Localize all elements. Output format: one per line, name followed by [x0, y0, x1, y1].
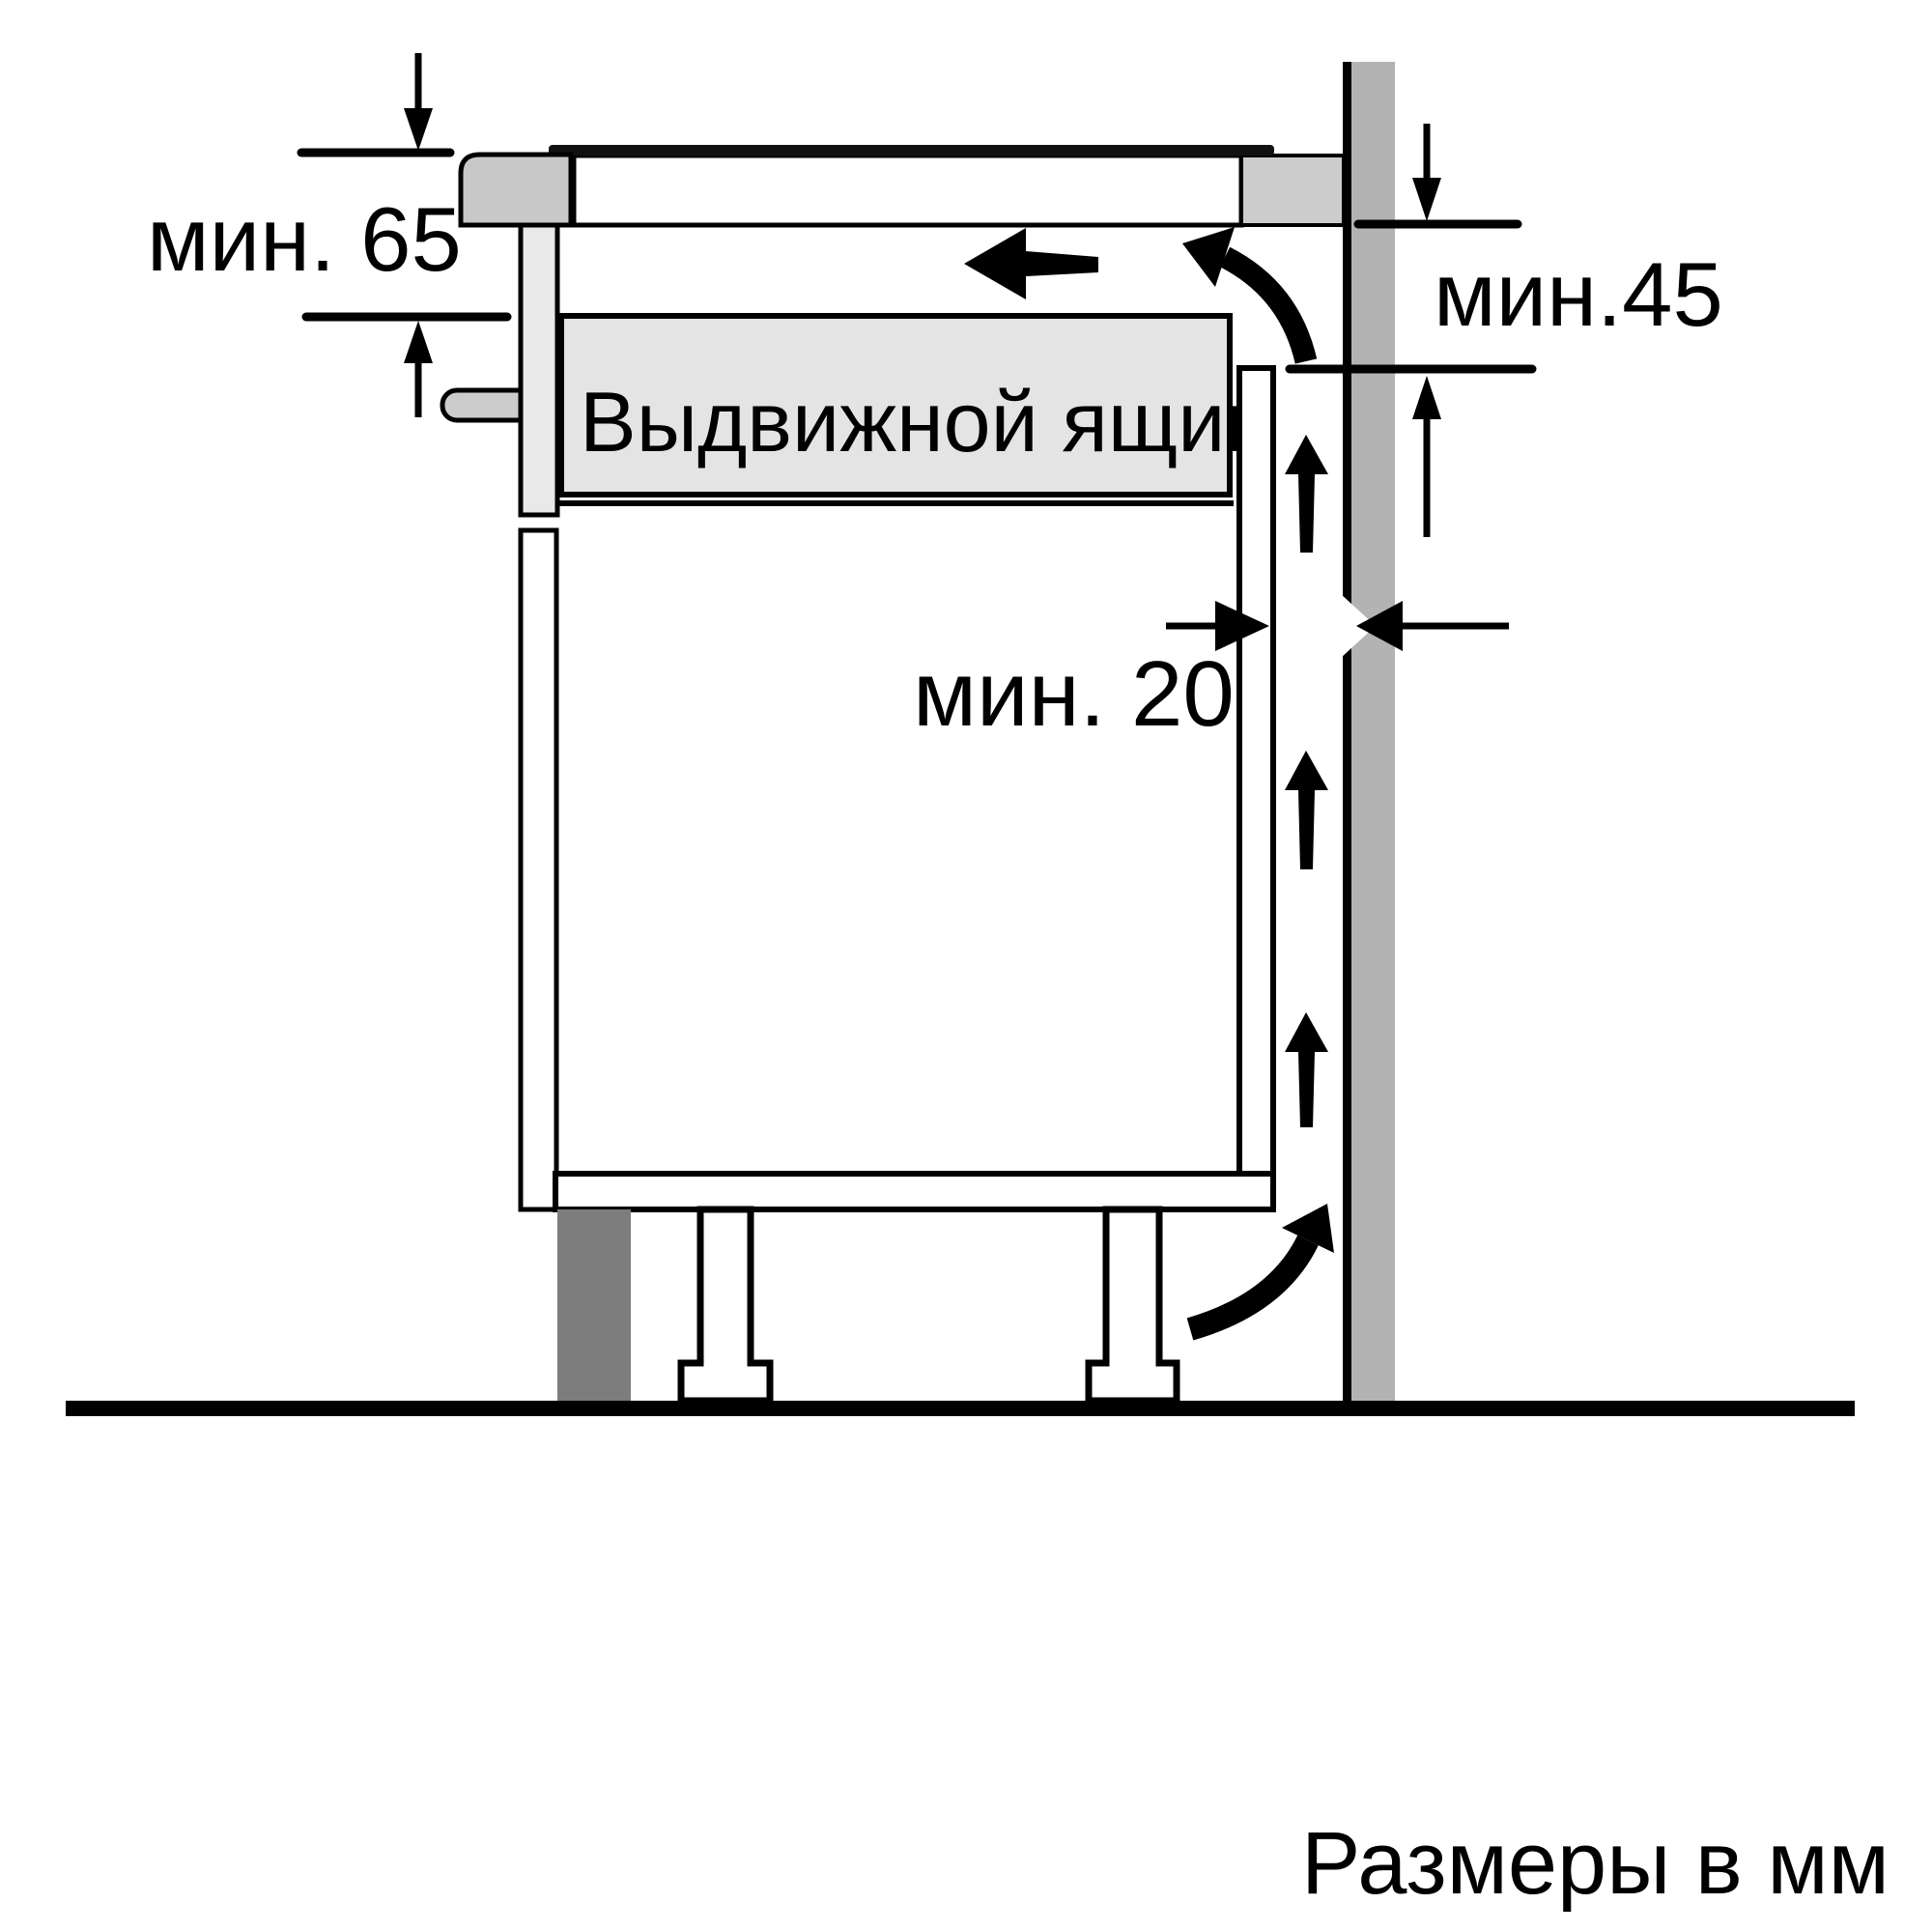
- airflow-up-arrow-3-icon: [1285, 1012, 1328, 1127]
- plinth-dark-block: [557, 1209, 631, 1401]
- installation-diagram: Выдвижной ящик мин. 65 мин.45 мин. 20: [0, 0, 1932, 1932]
- worktop: [574, 156, 1241, 225]
- dimension-min20: мин. 20: [913, 594, 1509, 746]
- airflow-curve-top: [1225, 257, 1306, 361]
- dim-arrow-down-icon: [404, 108, 433, 151]
- drawer-label: Выдвижной ящик: [580, 374, 1263, 469]
- dim-label-min65: мин. 65: [147, 188, 462, 290]
- dim-label-min45: мин.45: [1434, 243, 1723, 345]
- cooktop-glass-lip: [549, 145, 1274, 156]
- diagram-canvas: Выдвижной ящик мин. 65 мин.45 мин. 20: [0, 0, 1932, 1932]
- dim-arrow-up-icon: [404, 321, 433, 363]
- dim-arrow-down-icon: [1412, 178, 1441, 221]
- wall: [1351, 62, 1395, 1401]
- worktop-end-block: [1241, 156, 1344, 225]
- floor-line: [66, 1401, 1855, 1416]
- units-note: Размеры в мм: [1301, 1814, 1889, 1913]
- airflow-curve-bottom: [1190, 1240, 1308, 1329]
- cooktop-housing: [521, 225, 557, 515]
- cabinet-side-panel: [1239, 368, 1273, 1174]
- airflow-up-arrow-1-icon: [1285, 435, 1328, 553]
- cabinet-left-panel: [521, 530, 556, 1209]
- airflow-left-arrow-icon: [964, 228, 1098, 299]
- wall-edge-line: [1343, 62, 1351, 1401]
- cabinet-bottom-board: [555, 1174, 1273, 1209]
- dim-arrow-up-icon: [1412, 376, 1441, 419]
- airflow-up-arrow-2-icon: [1285, 751, 1328, 869]
- dimension-min65: мин. 65: [147, 53, 507, 417]
- cabinet-leg-left: [681, 1209, 770, 1401]
- cooktop-control-panel: [461, 155, 571, 225]
- dim-label-min20: мин. 20: [913, 642, 1235, 746]
- cabinet-leg-right: [1089, 1209, 1177, 1401]
